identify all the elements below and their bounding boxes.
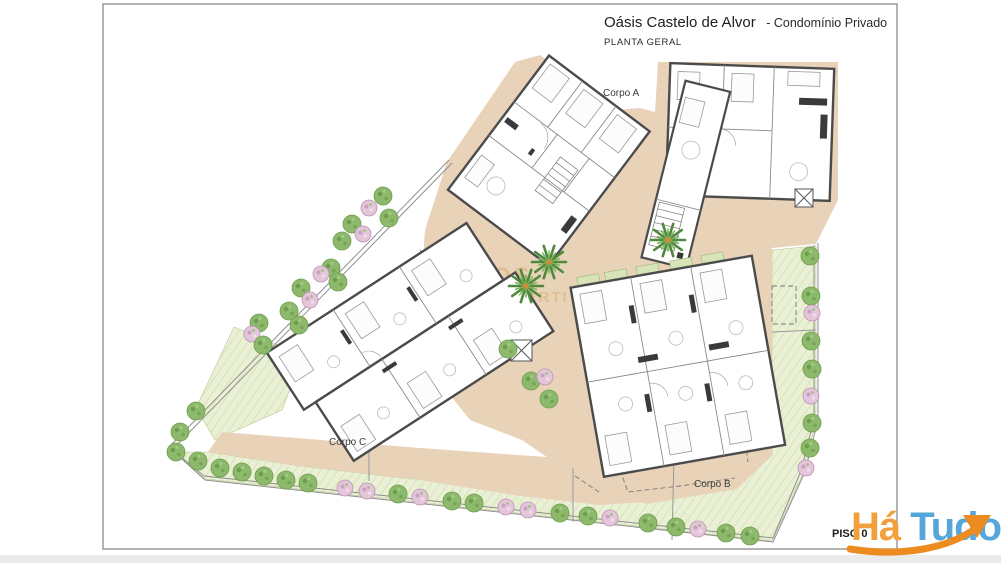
tree [803, 360, 821, 378]
tree [299, 474, 317, 492]
tree [167, 443, 185, 461]
label-corpo-b: Corpo B [694, 479, 731, 490]
page-strip [0, 555, 1001, 563]
tree [329, 273, 347, 291]
shrub [313, 266, 329, 282]
shrub [520, 502, 536, 518]
shrub [798, 460, 814, 476]
hatudo-logo: Há Tudo [850, 505, 1001, 552]
screenshot-root: OS PROPERTI [0, 0, 1001, 563]
tree [667, 518, 685, 536]
shrub [498, 499, 514, 515]
tree [277, 471, 295, 489]
logo-text-orange: Há [851, 505, 902, 549]
tree [290, 316, 308, 334]
tree [540, 390, 558, 408]
tree [579, 507, 597, 525]
label-corpo-c: Corpo C [329, 437, 366, 448]
shrub [412, 489, 428, 505]
tree [741, 527, 759, 545]
shrub [804, 305, 820, 321]
tree [551, 504, 569, 522]
tree [255, 467, 273, 485]
shrub [302, 292, 318, 308]
shrub [355, 226, 371, 242]
label-corpo-a: Corpo A [603, 88, 639, 99]
tree [801, 439, 819, 457]
tree [171, 423, 189, 441]
tree [639, 514, 657, 532]
drawing-name: PLANTA GERAL [604, 37, 682, 48]
tree [333, 232, 351, 250]
shrub [537, 369, 553, 385]
tree [803, 414, 821, 432]
tree [374, 187, 392, 205]
shrub [337, 480, 353, 496]
tree [189, 452, 207, 470]
shrub [359, 483, 375, 499]
shrub [602, 510, 618, 526]
tree [717, 524, 735, 542]
shrub [361, 200, 377, 216]
project-title: Oásis Castelo de Alvor [604, 14, 756, 31]
tree [802, 332, 820, 350]
floor-plan-canvas: OS PROPERTI [0, 0, 1001, 563]
tree [187, 402, 205, 420]
tree [465, 494, 483, 512]
tree [499, 340, 517, 358]
svg-text:Oásis Castelo de Alvor -: Oásis Castelo de Alvor - Condomínio Priv… [604, 14, 887, 31]
shrub [690, 521, 706, 537]
tree [802, 287, 820, 305]
tree [389, 485, 407, 503]
tree [443, 492, 461, 510]
tree [380, 209, 398, 227]
tree [254, 336, 272, 354]
tree [233, 463, 251, 481]
tree [211, 459, 229, 477]
tree [801, 247, 819, 265]
building-corpo-b [569, 247, 785, 477]
shrub [803, 388, 819, 404]
project-subtitle: - Condomínio Privado [766, 16, 887, 30]
